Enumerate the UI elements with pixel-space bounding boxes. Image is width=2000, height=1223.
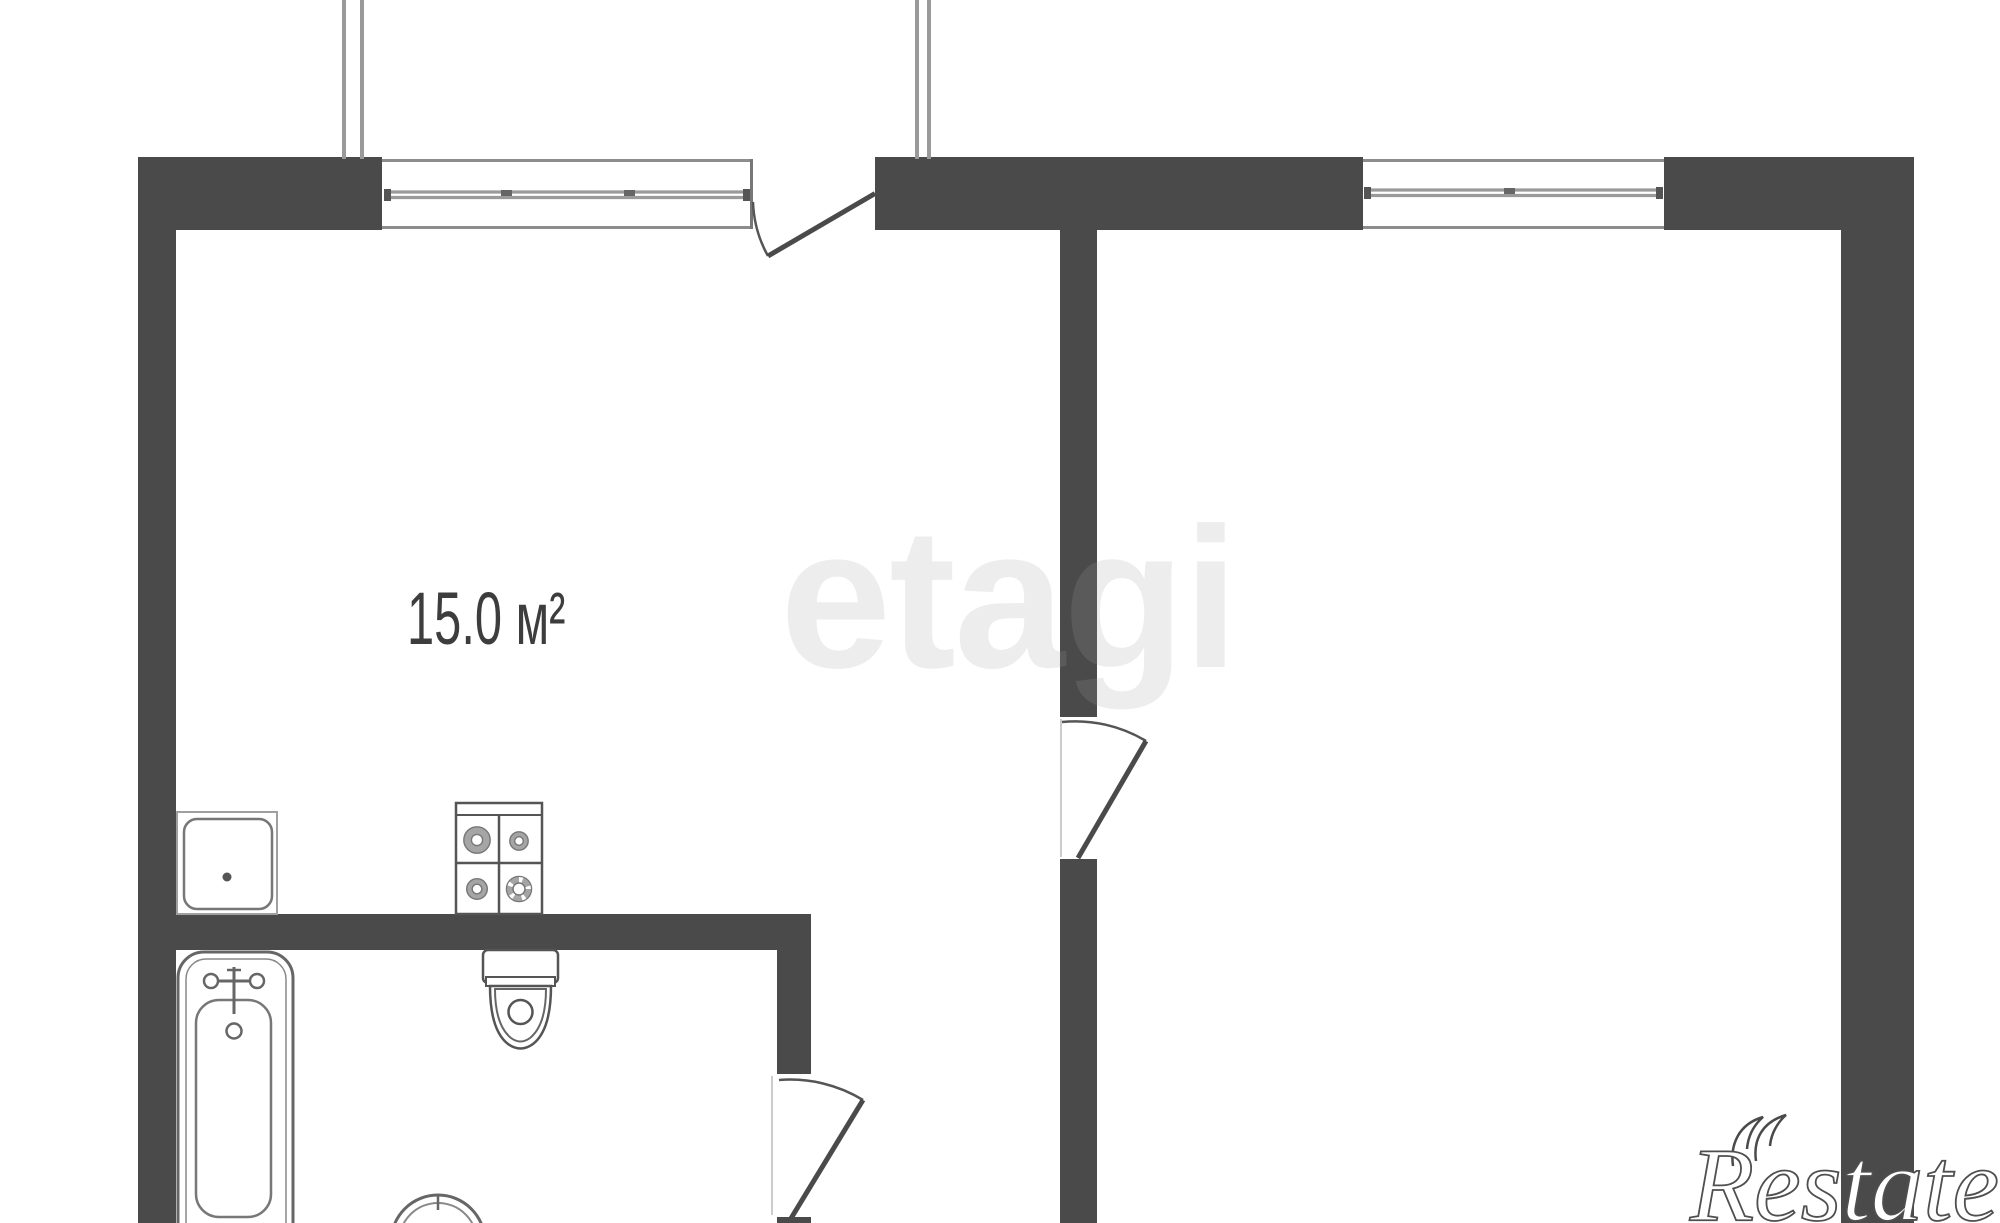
svg-text:etagi: etagi [780, 487, 1237, 710]
svg-text:Restate: Restate [1689, 1126, 1999, 1223]
svg-text:15.0 м²: 15.0 м² [407, 578, 565, 661]
